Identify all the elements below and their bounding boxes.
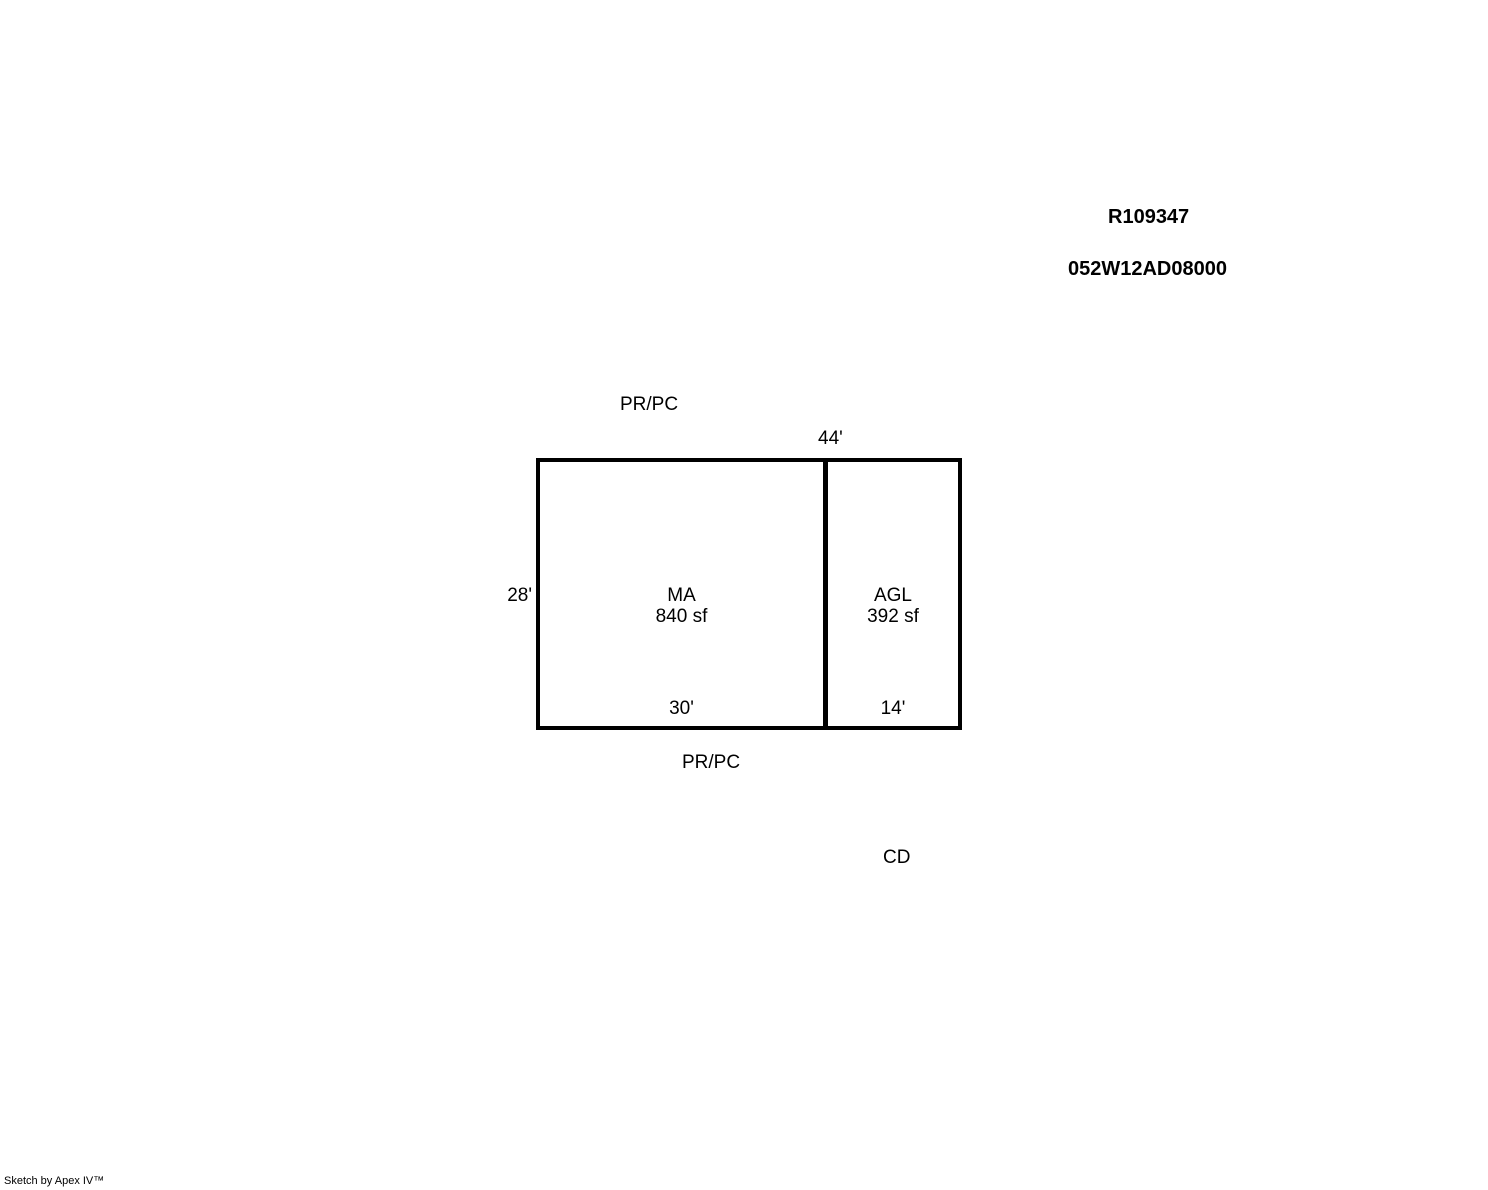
left-dimension-label: 28' — [440, 585, 532, 606]
top-dimension-label: 44' — [818, 428, 843, 449]
sketch-credit: Sketch by Apex IV™ — [4, 1175, 104, 1188]
section-agl-code: AGL — [828, 585, 958, 606]
section-ma-label: MA 840 sf — [540, 585, 823, 627]
side-label: CD — [883, 847, 910, 868]
section-ma-width-dimension: 30' — [540, 698, 823, 719]
bottom-boundary-label: PR/PC — [682, 752, 740, 773]
top-boundary-label: PR/PC — [620, 394, 678, 415]
section-ma-code: MA — [540, 585, 823, 606]
section-agl-label: AGL 392 sf — [828, 585, 958, 627]
section-agl-area: 392 sf — [828, 606, 958, 627]
parcel-id: 052W12AD08000 — [1068, 258, 1227, 281]
section-agl-width-dimension: 14' — [828, 698, 958, 719]
record-id: R109347 — [1108, 206, 1189, 229]
section-ma-area: 840 sf — [540, 606, 823, 627]
